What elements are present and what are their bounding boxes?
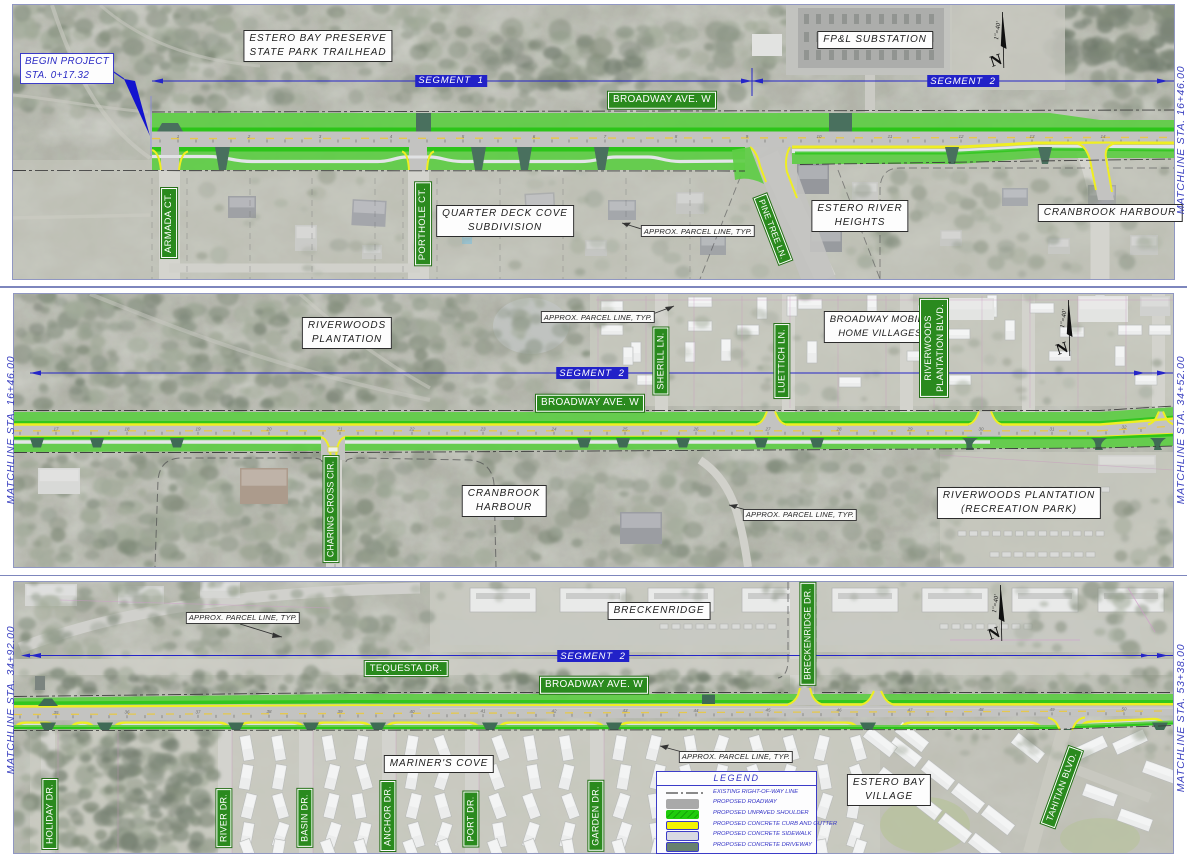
svg-text:24: 24 [550,426,557,431]
svg-text:14: 14 [1100,134,1106,139]
svg-text:42: 42 [551,708,557,713]
svg-text:13: 13 [1029,134,1035,139]
svg-text:36: 36 [124,710,130,715]
svg-text:40: 40 [409,709,415,714]
svg-text:45: 45 [765,708,771,713]
svg-text:48: 48 [978,707,984,712]
svg-text:2: 2 [247,134,251,139]
svg-text:20: 20 [265,426,272,431]
svg-text:43: 43 [622,708,628,713]
svg-text:22: 22 [408,426,415,431]
svg-text:18: 18 [124,426,130,431]
svg-text:31: 31 [1049,426,1055,431]
svg-text:29: 29 [906,426,913,431]
svg-text:11: 11 [888,134,893,139]
svg-text:41: 41 [480,709,486,714]
svg-text:38: 38 [266,709,272,714]
svg-text:37: 37 [195,709,201,714]
svg-text:39: 39 [337,709,343,714]
svg-text:10: 10 [816,134,822,139]
svg-text:19: 19 [195,426,201,431]
svg-text:27: 27 [764,426,771,431]
svg-text:17: 17 [53,426,59,431]
svg-text:35: 35 [53,710,59,715]
svg-text:50: 50 [1121,707,1127,712]
svg-text:28: 28 [835,426,842,431]
svg-text:30: 30 [978,426,984,431]
svg-text:21: 21 [336,426,343,431]
svg-text:23: 23 [479,426,486,431]
svg-text:32: 32 [1121,425,1127,430]
svg-text:26: 26 [692,426,699,431]
svg-text:44: 44 [693,708,699,713]
svg-text:49: 49 [1049,707,1055,712]
svg-text:25: 25 [621,426,628,431]
svg-text:46: 46 [836,708,842,713]
svg-text:47: 47 [907,707,913,712]
svg-text:12: 12 [958,134,964,139]
